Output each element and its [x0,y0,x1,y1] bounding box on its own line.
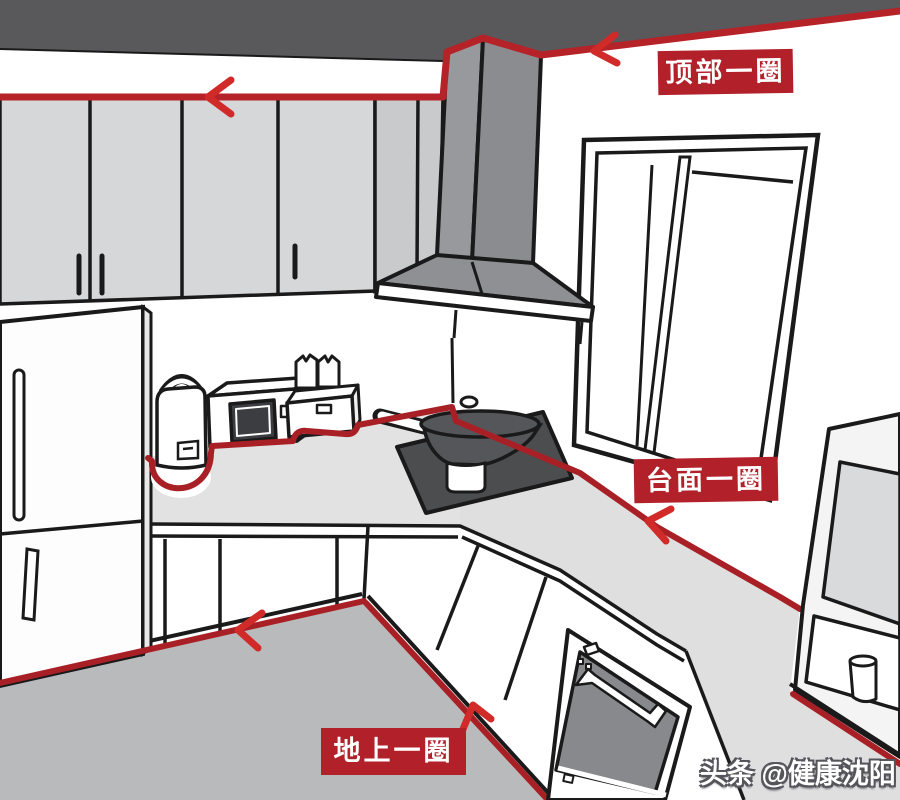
bread-slice [318,356,339,387]
upper-cabinets [0,96,443,304]
refrigerator [0,307,151,686]
label-counter-perimeter: 台面一圈 [634,457,779,504]
wok-lid-knob [461,397,477,407]
fridge-handle-lower [23,549,38,620]
oven-drawer-knob [563,774,573,783]
watermark-account: @健康沈阳 [762,759,896,789]
watermark-site: 头条 [700,759,754,789]
label-floor-perimeter: 地上一圈 [321,728,466,775]
oven-button [578,659,583,664]
watermark: 头条 @健康沈阳 [700,752,900,791]
cup-rim [850,656,876,666]
kitchen-illustration: 顶部一圈 台面一圈 地上一圈 头条 @健康沈阳 [0,0,900,800]
bread-slice [296,355,317,388]
kitchen-scene [0,0,900,800]
fridge-handle-upper [14,370,24,520]
wok-base [447,463,485,492]
wall-corner-line [452,338,453,403]
label-top-perimeter: 顶部一圈 [658,49,794,95]
rice-cooker [157,379,206,468]
